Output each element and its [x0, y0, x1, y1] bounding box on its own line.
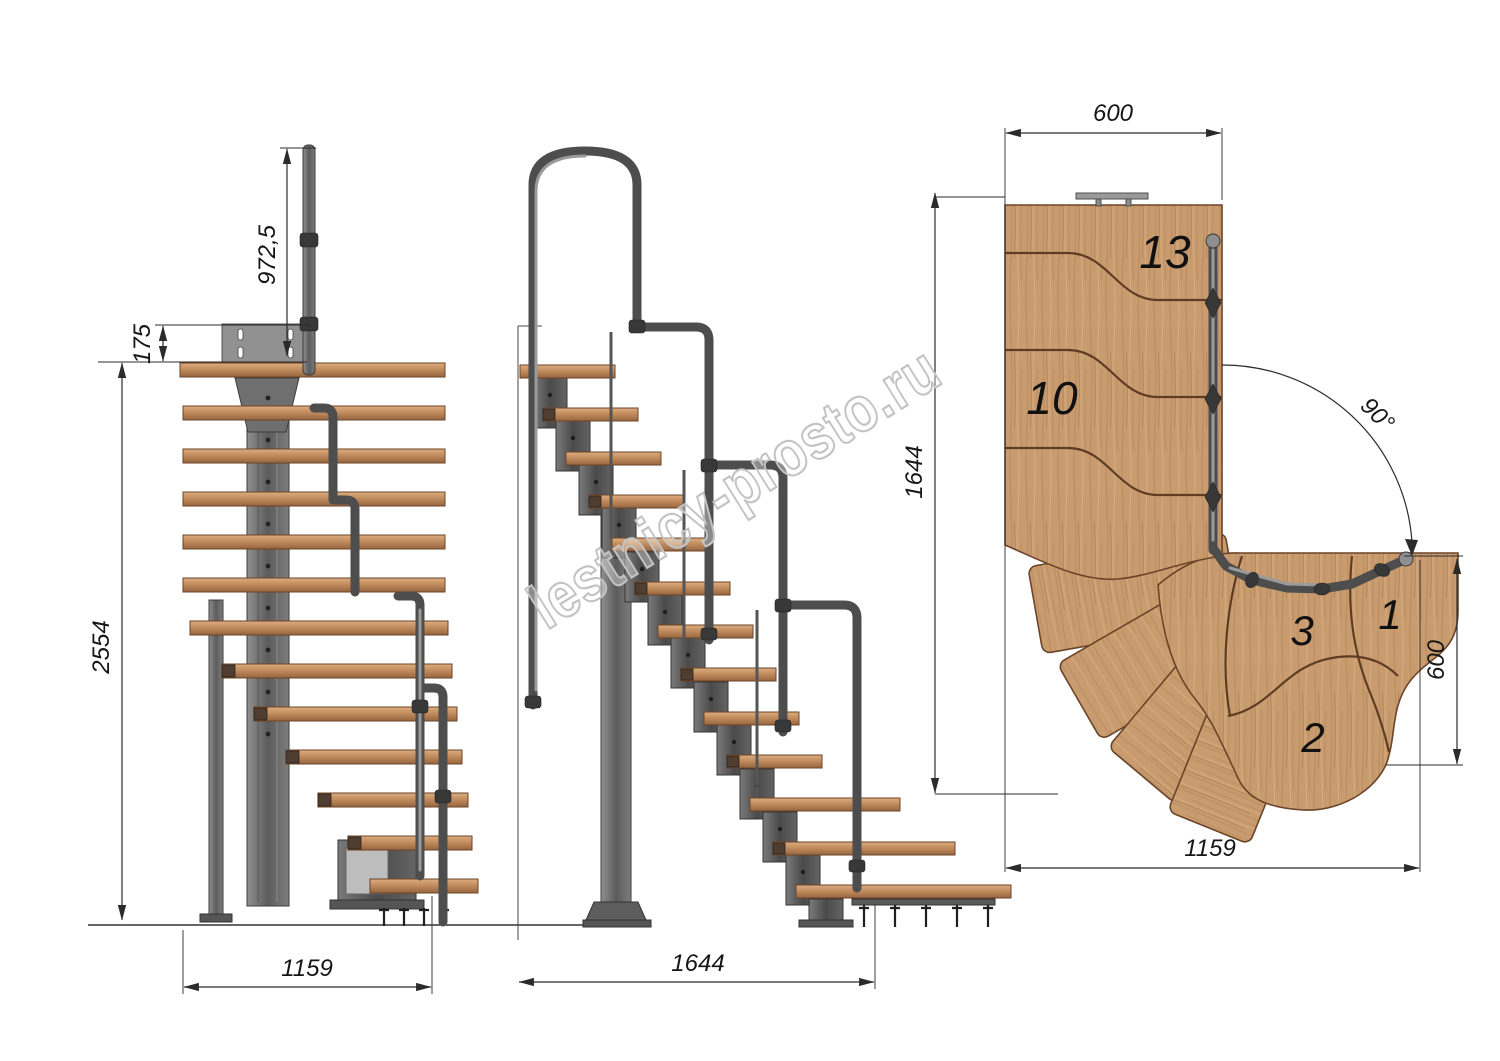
- step-module: [809, 899, 843, 923]
- column-flare: [586, 902, 646, 920]
- tread: [566, 452, 661, 465]
- dim-footprint-length: 1644: [671, 950, 724, 977]
- floor-bracket: [852, 899, 995, 905]
- tread: [796, 885, 1011, 898]
- tread: [681, 668, 776, 681]
- tread: [727, 755, 822, 768]
- rail-clamp: [629, 320, 645, 333]
- dim-handrail-height: 972,5: [254, 224, 281, 285]
- rail-clamp: [525, 696, 541, 708]
- tread-end-cap: [589, 496, 601, 507]
- drawing-page: 972,5 175 2554 1159: [0, 0, 1500, 1061]
- rail-clamp: [849, 860, 865, 872]
- dim-turn-angle: 90°: [1355, 392, 1400, 437]
- tread: [183, 535, 445, 549]
- label-step-2: 2: [1300, 714, 1324, 761]
- tread: [286, 750, 462, 764]
- tread: [183, 578, 445, 592]
- label-step-1: 1: [1378, 591, 1401, 638]
- dim-plate-offset: 175: [129, 323, 156, 364]
- bracket-leg: [1096, 199, 1101, 206]
- base-plate: [330, 900, 424, 909]
- label-step-3: 3: [1290, 607, 1313, 654]
- rail-clamp: [775, 720, 791, 732]
- support-pole: [209, 600, 223, 918]
- dim-top-width: 600: [1093, 100, 1134, 127]
- module-base-plate: [799, 920, 853, 927]
- dim-footprint-width: 1159: [281, 955, 333, 982]
- tread-end-cap: [254, 708, 267, 720]
- column-base-plate: [583, 920, 651, 927]
- rail-clamp: [412, 700, 428, 713]
- label-step-10: 10: [1026, 372, 1078, 424]
- bracket-bar: [1076, 193, 1148, 199]
- rail-clamp: [300, 233, 318, 247]
- anchor-bolts: [859, 905, 993, 927]
- tread: [370, 879, 478, 893]
- top-wall-bracket: [1076, 193, 1148, 206]
- rail-clamp: [701, 628, 717, 640]
- rail-drop: [398, 596, 420, 876]
- tread: [543, 408, 638, 421]
- tread-end-cap: [348, 837, 361, 849]
- dim-total-height: 2554: [88, 620, 115, 674]
- rail-clamp: [300, 317, 318, 331]
- tread: [773, 842, 955, 855]
- rail-cap: [1206, 234, 1220, 248]
- tread: [183, 449, 445, 463]
- plan-view: 13 10 3 2 1 600 1644 90° 600 1159: [901, 100, 1463, 872]
- rail-cap: [1399, 552, 1413, 566]
- tread-end-cap: [318, 794, 331, 806]
- rail-joint: [1314, 583, 1330, 596]
- tread: [348, 836, 472, 850]
- dim-bottom-length: 1159: [1184, 835, 1236, 862]
- tread-end-cap: [543, 409, 555, 420]
- label-step-13: 13: [1139, 226, 1191, 278]
- tread: [750, 798, 900, 811]
- support-pole-base: [200, 914, 232, 922]
- dim-left-length: 1644: [901, 445, 928, 498]
- tread-end-cap: [727, 756, 739, 767]
- tread-end-cap: [681, 669, 693, 680]
- tread: [183, 492, 445, 506]
- turn-angle-arc: [1222, 365, 1412, 542]
- tread-end-cap: [286, 751, 299, 763]
- rail-clamp: [775, 599, 791, 612]
- tread-end-cap: [773, 843, 785, 854]
- rail-clamp: [435, 790, 451, 803]
- staircase-technical-drawing: 972,5 175 2554 1159: [0, 0, 1500, 1061]
- tread: [190, 621, 448, 635]
- dim-right-width: 600: [1423, 639, 1450, 680]
- bracket-leg: [1126, 199, 1131, 206]
- tread-end-cap: [222, 665, 235, 677]
- handrail-post: [303, 145, 315, 375]
